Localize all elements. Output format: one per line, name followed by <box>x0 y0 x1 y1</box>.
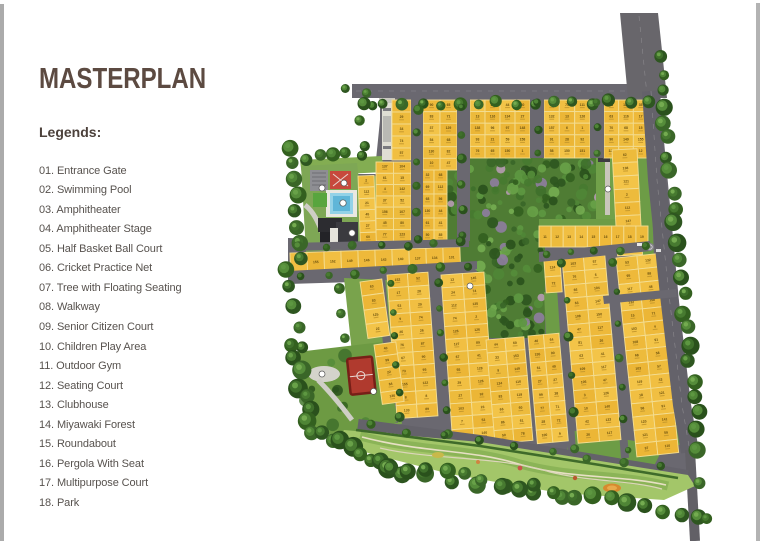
svg-text:121: 121 <box>659 391 665 396</box>
svg-text:41: 41 <box>477 353 481 357</box>
svg-text:43: 43 <box>658 378 662 382</box>
svg-text:83: 83 <box>372 298 376 303</box>
svg-text:15: 15 <box>400 176 404 180</box>
svg-text:24: 24 <box>451 290 455 294</box>
svg-text:44: 44 <box>506 103 510 107</box>
svg-text:13: 13 <box>476 114 480 118</box>
svg-text:71: 71 <box>555 405 559 409</box>
svg-text:41: 41 <box>601 352 605 356</box>
svg-text:91: 91 <box>654 338 658 342</box>
svg-text:77: 77 <box>540 406 544 410</box>
svg-text:53: 53 <box>625 260 629 264</box>
svg-text:74: 74 <box>419 315 423 319</box>
svg-text:129: 129 <box>446 126 452 130</box>
svg-text:32: 32 <box>426 173 430 177</box>
svg-text:61: 61 <box>520 419 524 423</box>
svg-text:2: 2 <box>626 193 628 197</box>
svg-text:10: 10 <box>584 406 588 410</box>
svg-text:126: 126 <box>453 329 459 333</box>
svg-text:92: 92 <box>580 138 584 142</box>
svg-text:22: 22 <box>387 370 391 375</box>
svg-text:155: 155 <box>534 352 540 356</box>
svg-text:112: 112 <box>364 190 370 194</box>
svg-text:123: 123 <box>399 232 405 236</box>
svg-text:137: 137 <box>415 256 421 260</box>
svg-text:57: 57 <box>593 260 597 264</box>
svg-text:10: 10 <box>430 161 434 165</box>
svg-text:100: 100 <box>542 433 548 437</box>
svg-text:83: 83 <box>430 115 434 119</box>
svg-text:117: 117 <box>607 431 613 435</box>
svg-text:66: 66 <box>500 407 504 411</box>
svg-text:122: 122 <box>422 381 428 385</box>
svg-text:63: 63 <box>575 301 579 305</box>
svg-text:60: 60 <box>366 235 370 239</box>
svg-text:141: 141 <box>662 417 668 422</box>
svg-text:22: 22 <box>376 327 380 332</box>
svg-text:95: 95 <box>422 368 426 372</box>
svg-text:120: 120 <box>641 419 647 424</box>
svg-text:52: 52 <box>400 199 404 203</box>
svg-text:116: 116 <box>623 114 629 118</box>
svg-text:128: 128 <box>477 366 483 370</box>
svg-text:72: 72 <box>557 418 561 422</box>
svg-text:27: 27 <box>538 379 542 383</box>
svg-text:17: 17 <box>616 235 620 239</box>
svg-text:52: 52 <box>416 276 420 280</box>
svg-text:23: 23 <box>480 405 484 409</box>
svg-text:103: 103 <box>458 406 464 410</box>
svg-text:147: 147 <box>595 299 601 303</box>
svg-text:70: 70 <box>609 126 613 130</box>
svg-text:91: 91 <box>550 138 554 142</box>
svg-text:53: 53 <box>397 304 401 308</box>
svg-text:119: 119 <box>637 380 643 385</box>
svg-text:76: 76 <box>572 275 576 279</box>
svg-text:60: 60 <box>518 406 522 410</box>
svg-text:69: 69 <box>426 185 430 189</box>
svg-text:89: 89 <box>425 407 429 411</box>
svg-text:27: 27 <box>366 224 370 228</box>
svg-text:150: 150 <box>505 149 511 153</box>
svg-text:140: 140 <box>604 404 610 408</box>
svg-text:74: 74 <box>453 316 457 320</box>
svg-text:26: 26 <box>420 328 424 332</box>
svg-text:76: 76 <box>400 343 404 347</box>
svg-text:126: 126 <box>474 328 480 332</box>
svg-text:121: 121 <box>642 433 648 438</box>
svg-text:76: 76 <box>476 149 480 153</box>
svg-text:109: 109 <box>579 367 585 371</box>
svg-text:90: 90 <box>430 103 434 107</box>
svg-text:33: 33 <box>495 355 499 359</box>
svg-text:64: 64 <box>550 338 554 342</box>
svg-text:42: 42 <box>585 419 589 423</box>
svg-text:53: 53 <box>481 418 485 422</box>
svg-text:95: 95 <box>626 274 630 278</box>
svg-text:40: 40 <box>534 339 538 343</box>
svg-text:85: 85 <box>439 233 443 237</box>
svg-text:132: 132 <box>549 114 555 118</box>
svg-text:104: 104 <box>399 165 405 169</box>
svg-text:83: 83 <box>498 394 502 398</box>
svg-text:68: 68 <box>447 138 451 142</box>
svg-text:130: 130 <box>429 150 435 154</box>
svg-text:104: 104 <box>594 286 600 290</box>
svg-text:21: 21 <box>491 138 495 142</box>
svg-text:47: 47 <box>603 378 607 382</box>
svg-text:9: 9 <box>399 317 401 321</box>
svg-text:29: 29 <box>418 302 422 306</box>
svg-text:110: 110 <box>664 444 670 449</box>
svg-text:89: 89 <box>476 341 480 345</box>
svg-text:18: 18 <box>639 393 643 397</box>
svg-text:38: 38 <box>554 391 558 395</box>
svg-text:16: 16 <box>604 235 608 239</box>
svg-text:17: 17 <box>639 114 643 118</box>
svg-text:61: 61 <box>383 176 387 180</box>
svg-text:14: 14 <box>579 235 583 239</box>
svg-text:74: 74 <box>472 289 476 293</box>
svg-text:84: 84 <box>388 382 392 387</box>
svg-text:44: 44 <box>439 209 443 213</box>
svg-text:134: 134 <box>496 381 502 385</box>
svg-text:103: 103 <box>631 327 637 332</box>
svg-text:26: 26 <box>599 339 603 343</box>
svg-text:41: 41 <box>439 221 443 225</box>
svg-text:77: 77 <box>383 232 387 236</box>
svg-text:140: 140 <box>481 431 487 435</box>
svg-text:29: 29 <box>457 381 461 385</box>
svg-text:143: 143 <box>381 258 387 262</box>
svg-text:8: 8 <box>425 394 427 398</box>
svg-text:155: 155 <box>402 382 408 386</box>
svg-text:12: 12 <box>639 149 643 153</box>
svg-text:54: 54 <box>430 138 434 142</box>
svg-text:59: 59 <box>664 431 668 435</box>
svg-text:56: 56 <box>439 197 443 201</box>
svg-text:11: 11 <box>543 235 547 239</box>
svg-text:153: 153 <box>513 354 519 358</box>
svg-text:66: 66 <box>573 288 577 292</box>
svg-text:67: 67 <box>401 356 405 360</box>
svg-text:13: 13 <box>565 114 569 118</box>
svg-text:105: 105 <box>581 380 587 384</box>
svg-text:91: 91 <box>661 404 665 408</box>
svg-text:97: 97 <box>644 446 648 450</box>
svg-text:61: 61 <box>426 221 430 225</box>
svg-text:117: 117 <box>627 287 633 292</box>
svg-text:137: 137 <box>382 165 388 169</box>
svg-text:63: 63 <box>579 354 583 358</box>
svg-text:152: 152 <box>395 278 401 282</box>
svg-text:6: 6 <box>566 126 568 130</box>
svg-text:1: 1 <box>522 149 524 153</box>
svg-text:17: 17 <box>396 291 400 295</box>
svg-text:63: 63 <box>370 284 374 289</box>
svg-text:4: 4 <box>384 187 386 191</box>
svg-text:68: 68 <box>635 353 639 357</box>
svg-text:145: 145 <box>471 276 477 280</box>
svg-text:27: 27 <box>521 114 525 118</box>
svg-text:55: 55 <box>456 368 460 372</box>
svg-text:58: 58 <box>550 149 554 153</box>
svg-text:78: 78 <box>521 431 525 435</box>
svg-text:13: 13 <box>450 278 454 282</box>
svg-text:21: 21 <box>365 201 369 205</box>
svg-text:7: 7 <box>461 419 463 423</box>
svg-text:63: 63 <box>609 114 613 118</box>
svg-text:158: 158 <box>520 138 526 142</box>
svg-text:59: 59 <box>506 138 510 142</box>
svg-text:80: 80 <box>400 221 404 225</box>
svg-text:117: 117 <box>597 325 603 329</box>
svg-text:112: 112 <box>438 185 444 189</box>
svg-text:48: 48 <box>649 285 653 289</box>
svg-text:12: 12 <box>555 235 559 239</box>
svg-text:146: 146 <box>364 258 370 262</box>
svg-text:126: 126 <box>603 391 609 395</box>
svg-text:65: 65 <box>447 103 451 107</box>
svg-text:90: 90 <box>609 138 613 142</box>
svg-text:27: 27 <box>553 378 557 382</box>
svg-text:90: 90 <box>422 355 426 359</box>
svg-text:134: 134 <box>505 114 511 118</box>
svg-text:81: 81 <box>578 340 582 344</box>
svg-text:149: 149 <box>623 138 629 142</box>
svg-text:157: 157 <box>549 126 555 130</box>
svg-text:62: 62 <box>623 153 627 157</box>
svg-text:117: 117 <box>601 365 607 369</box>
svg-text:72: 72 <box>552 281 556 285</box>
svg-text:103: 103 <box>570 261 576 265</box>
svg-text:130: 130 <box>425 209 431 213</box>
svg-text:15: 15 <box>592 235 596 239</box>
svg-text:126: 126 <box>579 114 585 118</box>
svg-text:99: 99 <box>539 393 543 397</box>
svg-text:126: 126 <box>478 379 484 383</box>
svg-text:45: 45 <box>365 212 369 216</box>
svg-text:8: 8 <box>405 395 407 399</box>
svg-text:45: 45 <box>383 221 387 225</box>
svg-text:57: 57 <box>657 364 661 368</box>
svg-text:116: 116 <box>490 114 496 118</box>
svg-text:132: 132 <box>645 258 651 263</box>
svg-text:74: 74 <box>400 139 404 143</box>
svg-text:47: 47 <box>447 161 451 165</box>
svg-text:155: 155 <box>638 138 644 142</box>
svg-text:88: 88 <box>647 271 651 275</box>
svg-text:149: 149 <box>347 259 353 263</box>
svg-text:150: 150 <box>596 312 602 316</box>
svg-text:67: 67 <box>456 355 460 359</box>
svg-text:96: 96 <box>491 126 495 130</box>
svg-text:15: 15 <box>631 313 635 317</box>
svg-text:26: 26 <box>399 330 403 334</box>
svg-text:2: 2 <box>365 178 367 182</box>
svg-text:18: 18 <box>628 235 632 239</box>
svg-text:127: 127 <box>454 342 460 346</box>
svg-text:108: 108 <box>575 314 581 318</box>
svg-text:142: 142 <box>399 187 405 191</box>
svg-text:27: 27 <box>458 394 462 398</box>
svg-text:47: 47 <box>577 327 581 331</box>
svg-text:108: 108 <box>632 340 638 345</box>
svg-text:112: 112 <box>451 303 457 307</box>
svg-text:121: 121 <box>623 179 629 183</box>
svg-text:71: 71 <box>447 115 451 119</box>
svg-text:119: 119 <box>516 393 522 397</box>
svg-text:28: 28 <box>541 420 545 424</box>
svg-text:58: 58 <box>640 406 644 410</box>
svg-text:15: 15 <box>639 126 643 130</box>
svg-text:152: 152 <box>330 259 336 263</box>
svg-text:156: 156 <box>382 210 388 214</box>
svg-text:87: 87 <box>421 342 425 346</box>
svg-text:147: 147 <box>625 219 631 223</box>
svg-text:44: 44 <box>494 342 498 346</box>
svg-text:138: 138 <box>623 166 629 170</box>
svg-text:99: 99 <box>385 358 389 363</box>
svg-text:49: 49 <box>552 364 556 368</box>
svg-text:82: 82 <box>447 150 451 154</box>
svg-text:103: 103 <box>635 366 641 371</box>
svg-text:68: 68 <box>426 197 430 201</box>
svg-text:50: 50 <box>426 233 430 237</box>
svg-text:61: 61 <box>537 366 541 370</box>
svg-text:135: 135 <box>472 302 478 306</box>
svg-text:1: 1 <box>581 126 583 130</box>
svg-text:2: 2 <box>475 315 477 319</box>
svg-text:37: 37 <box>383 199 387 203</box>
svg-text:151: 151 <box>579 149 585 153</box>
svg-text:116: 116 <box>515 380 521 384</box>
svg-text:86: 86 <box>501 420 505 424</box>
svg-text:131: 131 <box>449 255 455 259</box>
svg-text:107: 107 <box>399 210 405 214</box>
svg-text:148: 148 <box>520 126 526 130</box>
svg-text:50: 50 <box>502 433 506 437</box>
svg-text:138: 138 <box>475 126 481 130</box>
svg-text:140: 140 <box>398 257 404 261</box>
svg-text:57: 57 <box>400 151 404 155</box>
svg-text:65: 65 <box>491 149 495 153</box>
svg-text:133: 133 <box>605 418 611 422</box>
svg-text:150: 150 <box>564 149 570 153</box>
svg-text:68: 68 <box>624 126 628 130</box>
svg-text:112: 112 <box>625 206 631 210</box>
svg-text:28: 28 <box>565 138 569 142</box>
svg-text:97: 97 <box>506 126 510 130</box>
svg-text:60: 60 <box>513 341 517 345</box>
svg-text:124: 124 <box>550 265 556 269</box>
svg-text:149: 149 <box>514 367 520 371</box>
svg-text:111: 111 <box>580 103 585 107</box>
svg-text:35: 35 <box>639 103 643 107</box>
svg-text:125: 125 <box>373 312 379 317</box>
svg-text:90: 90 <box>551 351 555 355</box>
svg-text:13: 13 <box>567 235 571 239</box>
svg-text:26: 26 <box>586 433 590 437</box>
svg-text:37: 37 <box>430 126 434 130</box>
svg-text:155: 155 <box>313 260 319 264</box>
svg-text:73: 73 <box>402 369 406 373</box>
svg-text:34: 34 <box>400 127 404 131</box>
svg-text:92: 92 <box>480 392 484 396</box>
svg-text:29: 29 <box>400 115 404 119</box>
svg-text:58: 58 <box>656 351 660 355</box>
svg-text:28: 28 <box>417 289 421 293</box>
svg-text:134: 134 <box>432 256 438 260</box>
svg-text:136: 136 <box>389 394 395 399</box>
svg-text:71: 71 <box>651 311 655 315</box>
svg-text:68: 68 <box>439 173 443 177</box>
svg-text:40: 40 <box>383 346 387 351</box>
svg-text:93: 93 <box>476 138 480 142</box>
svg-text:19: 19 <box>640 235 644 239</box>
svg-text:133: 133 <box>404 408 410 412</box>
